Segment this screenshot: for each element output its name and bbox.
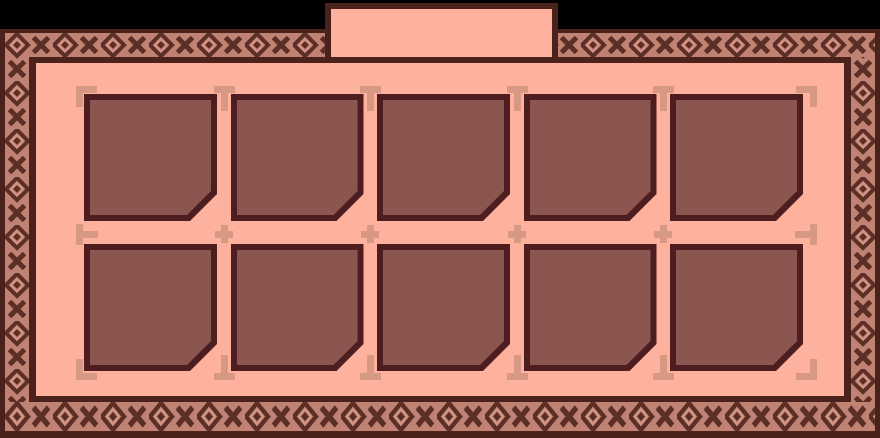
inventory-slot-5[interactable] — [670, 94, 803, 221]
slot-well — [530, 100, 651, 215]
border-pattern-right — [851, 33, 875, 431]
slot-well — [383, 100, 504, 215]
border-pattern-bottom — [5, 402, 875, 431]
game-screen — [0, 0, 880, 438]
inventory-row-1 — [84, 94, 803, 221]
slot-well — [676, 250, 797, 365]
inventory-slot-7[interactable] — [231, 244, 364, 371]
slot-well — [676, 100, 797, 215]
inventory-panel — [30, 57, 850, 402]
guide-bar — [76, 359, 83, 380]
panel-tab[interactable] — [325, 3, 558, 63]
slot-well — [90, 100, 211, 215]
guide-bar — [810, 359, 817, 380]
slot-well — [237, 100, 358, 215]
slot-well — [90, 250, 211, 365]
inventory-grid — [84, 94, 803, 371]
inventory-row-2 — [84, 244, 803, 371]
slot-well — [237, 250, 358, 365]
guide-bar — [810, 86, 817, 107]
guide-bar — [810, 224, 817, 245]
border-pattern-left — [5, 33, 29, 431]
slot-well — [530, 250, 651, 365]
inventory-slot-9[interactable] — [524, 244, 657, 371]
inventory-slot-1[interactable] — [84, 94, 217, 221]
slot-well — [383, 250, 504, 365]
inventory-slot-4[interactable] — [524, 94, 657, 221]
inventory-slot-10[interactable] — [670, 244, 803, 371]
inventory-slot-6[interactable] — [84, 244, 217, 371]
guide-bar — [76, 224, 83, 245]
inventory-slot-8[interactable] — [377, 244, 510, 371]
inventory-slot-3[interactable] — [377, 94, 510, 221]
guide-bar — [76, 86, 83, 107]
inventory-slot-2[interactable] — [231, 94, 364, 221]
